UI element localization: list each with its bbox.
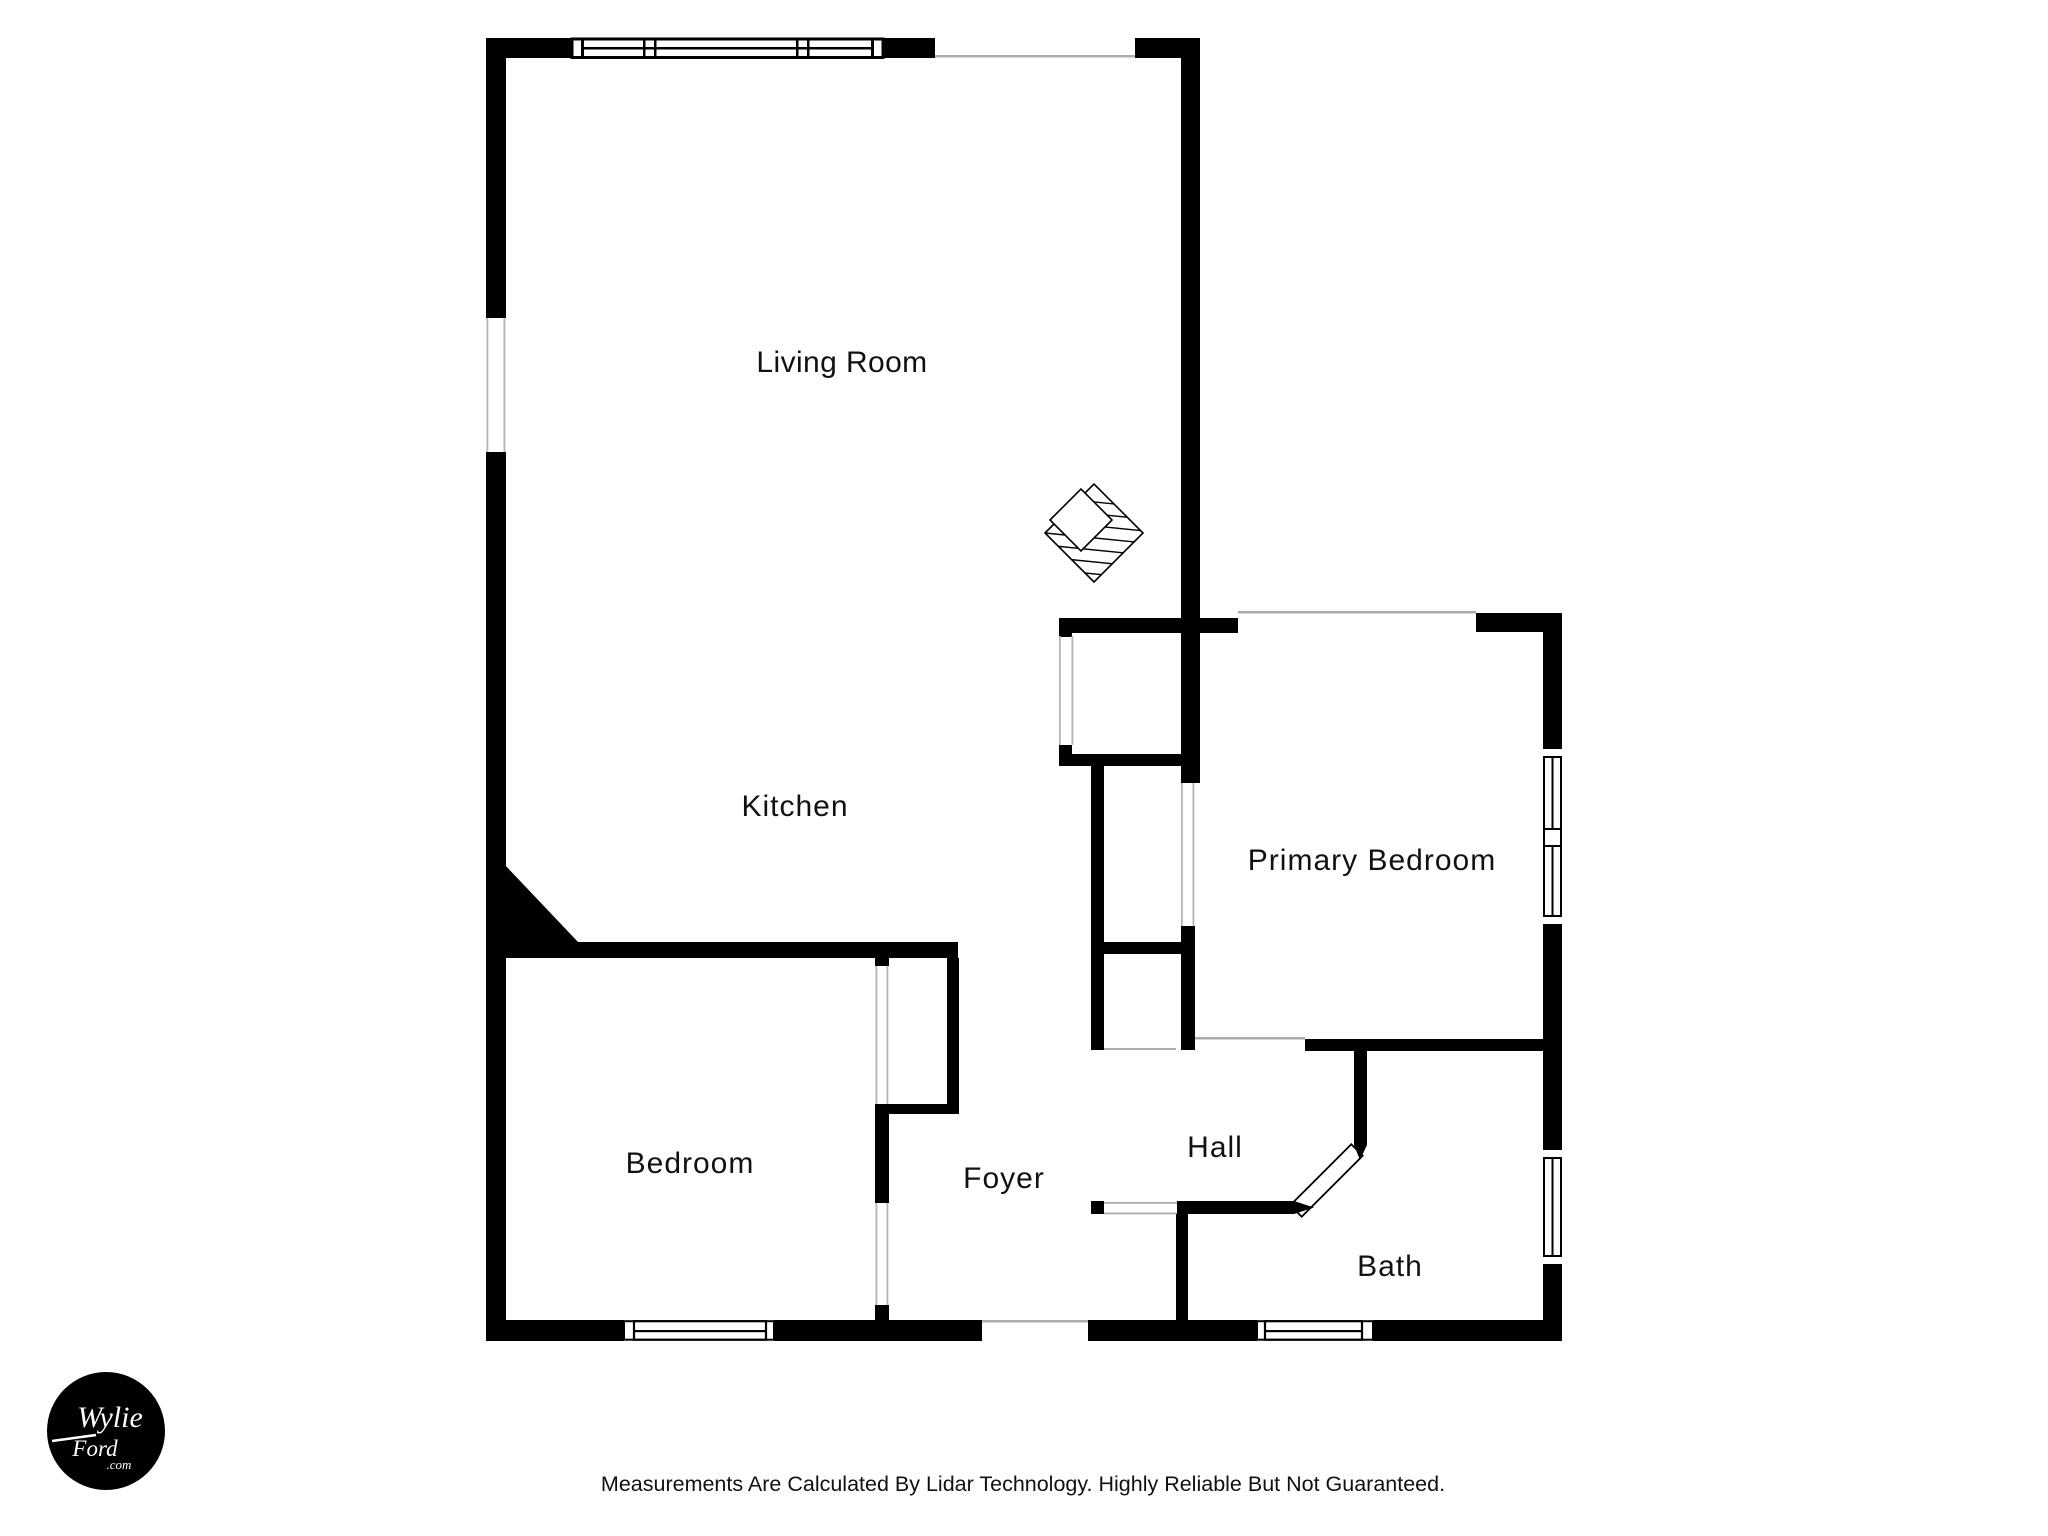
svg-text:Kitchen: Kitchen <box>741 790 848 823</box>
svg-text:Bath: Bath <box>1357 1250 1423 1283</box>
svg-text:Wylie: Wylie <box>77 1401 143 1434</box>
svg-text:Primary Bedroom: Primary Bedroom <box>1248 844 1496 877</box>
svg-text:Measurements Are Calculated By: Measurements Are Calculated By Lidar Tec… <box>601 1472 1445 1496</box>
svg-text:Foyer: Foyer <box>963 1162 1045 1195</box>
svg-text:Living Room: Living Room <box>756 346 927 379</box>
svg-text:Hall: Hall <box>1187 1131 1243 1164</box>
svg-text:.com: .com <box>107 1457 132 1472</box>
svg-text:Bedroom: Bedroom <box>626 1147 755 1180</box>
